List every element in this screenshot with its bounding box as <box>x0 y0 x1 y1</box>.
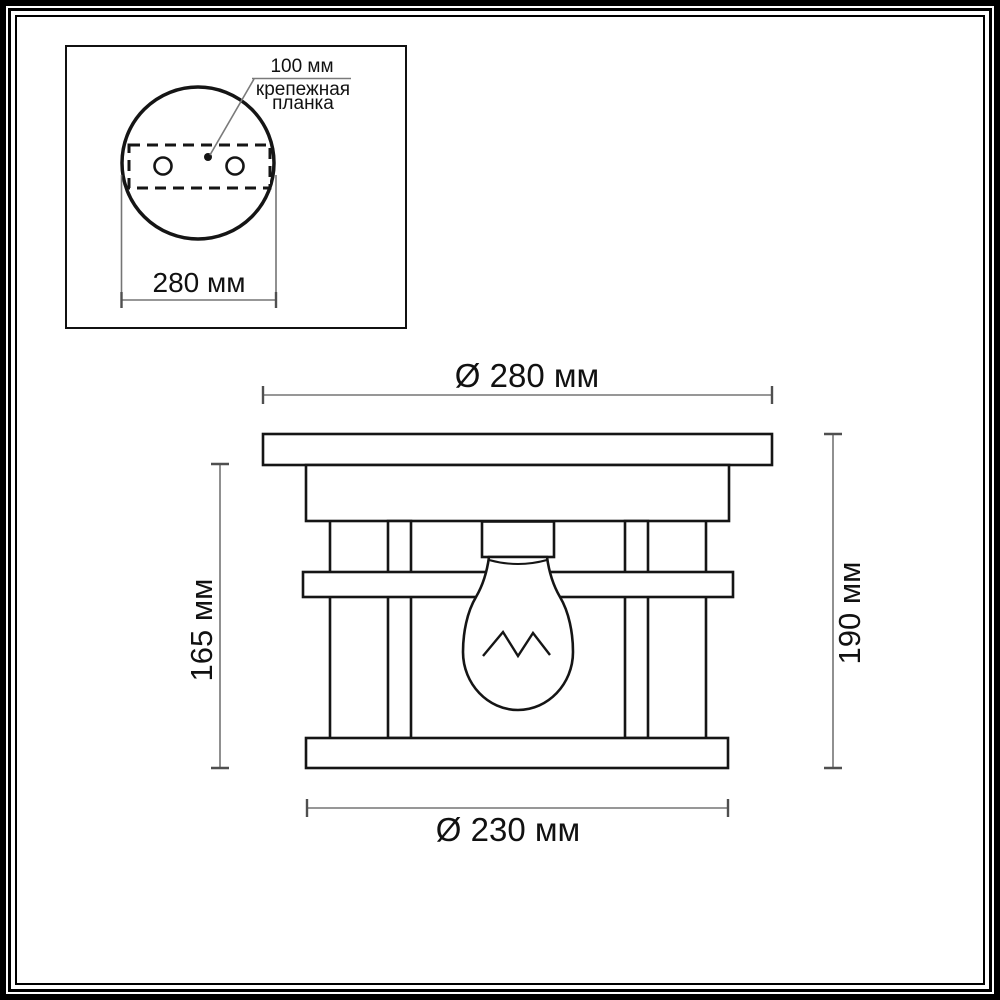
right-height-label: 190 мм <box>832 562 868 665</box>
technical-drawing <box>0 0 1000 1000</box>
mounting-bracket-dashed-outline <box>129 145 270 188</box>
inset-100mm-label: 100 мм <box>270 56 333 78</box>
screw-hole-left <box>155 158 172 175</box>
cage-post-right <box>625 521 648 738</box>
cage-post-left <box>388 521 411 738</box>
front-view-diagram <box>263 434 772 768</box>
bottom-diameter-label: Ø 230 мм <box>436 811 580 849</box>
bottom-band <box>306 738 728 768</box>
left-height-label: 165 мм <box>184 579 220 682</box>
top-view-diagram <box>122 87 274 239</box>
upper-body-tier <box>306 465 729 521</box>
lamp-socket <box>482 522 554 558</box>
screw-hole-right <box>227 158 244 175</box>
ceiling-plate <box>263 434 772 465</box>
inset-width-dimension-label: 280 мм <box>153 267 246 299</box>
inset-bracket-note: крепежная планка <box>256 83 350 111</box>
top-diameter-label: Ø 280 мм <box>455 357 599 395</box>
